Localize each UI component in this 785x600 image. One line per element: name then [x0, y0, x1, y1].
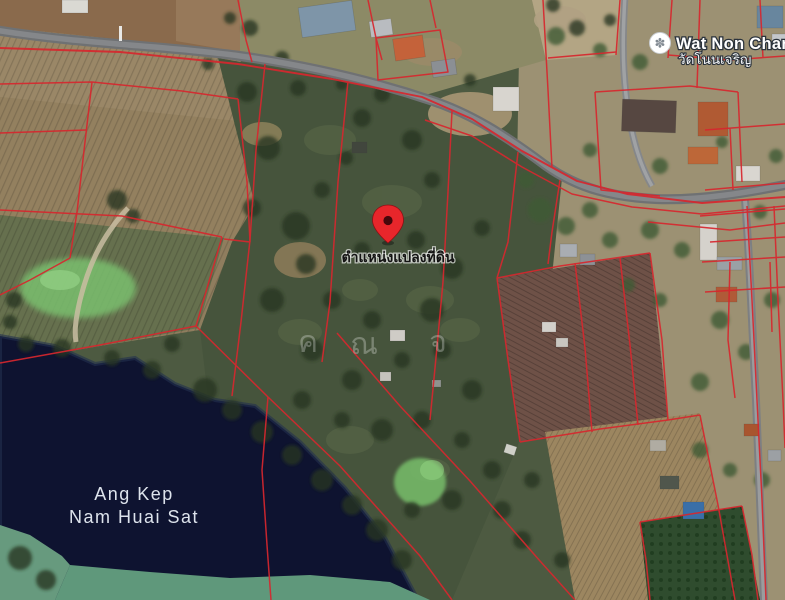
temple-icon-glyph: ✽ — [655, 36, 666, 51]
poi-name-en[interactable]: Wat Non Charoe — [676, 35, 785, 53]
watermark-glyph: ณ — [350, 328, 378, 361]
map-pin-hole — [383, 216, 392, 225]
satellite-map-canvas[interactable]: ค ณ จ Ang Kep Nam Huai Sat ✽ Wat Non Cha… — [0, 0, 785, 600]
plot-marker-label: ตำแหน่งแปลงที่ดิน — [342, 247, 455, 265]
map-viewport: ค ณ จ Ang Kep Nam Huai Sat ✽ Wat Non Cha… — [0, 0, 785, 600]
poi-name-th: วัดโนนเจริญ — [678, 51, 751, 67]
lake-name-line1: Ang Kep — [94, 484, 174, 504]
lake-name-line2: Nam Huai Sat — [69, 507, 199, 527]
watermark-glyph: ค — [298, 326, 318, 359]
watermark-glyph: จ — [429, 326, 447, 359]
roadside-pole — [119, 26, 122, 41]
